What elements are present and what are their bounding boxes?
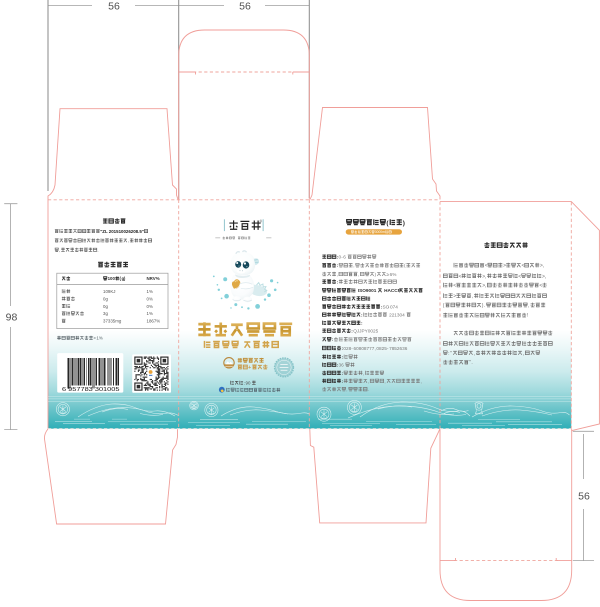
svg-text:221304: 221304 <box>389 313 405 318</box>
svg-text:): ) <box>403 220 405 227</box>
svg-text:109KJ: 109KJ <box>103 289 115 294</box>
svg-text:>: > <box>503 263 506 269</box>
svg-text:6 957783 301005: 6 957783 301005 <box>62 387 120 393</box>
svg-text:ZL 201510026208.5: ZL 201510026208.5 <box>102 229 142 234</box>
svg-text:<: < <box>518 274 521 280</box>
svg-text:,: , <box>485 283 486 289</box>
svg-text:,: , <box>523 351 524 357</box>
svg-text:,: , <box>485 274 486 280</box>
svg-text:.: . <box>484 303 485 309</box>
svg-text:3g: 3g <box>103 311 108 316</box>
svg-text:,: , <box>545 274 546 280</box>
svg-text:074: 074 <box>390 305 398 310</box>
svg-text:ISO9001: ISO9001 <box>358 288 377 293</box>
svg-text:7852636: 7852636 <box>389 346 408 351</box>
svg-text:6%: 6% <box>390 272 397 277</box>
svg-text:.: . <box>97 248 98 253</box>
svg-text:0%: 0% <box>147 304 153 309</box>
svg-text:<: < <box>539 283 542 289</box>
svg-text:1%: 1% <box>96 336 102 341</box>
svg-text:+: + <box>248 365 251 371</box>
svg-text:<: < <box>485 263 488 269</box>
svg-text:!: ! <box>527 313 528 319</box>
svg-text:HACCP: HACCP <box>384 288 401 293</box>
svg-text:,: , <box>472 294 473 300</box>
svg-text:90: 90 <box>246 381 251 386</box>
svg-text:,: , <box>59 248 60 253</box>
svg-text:,: , <box>474 351 475 357</box>
svg-text:.: . <box>471 360 472 366</box>
svg-text:1%: 1% <box>147 311 153 316</box>
svg-text:,: , <box>128 238 129 243</box>
svg-text:QJJPY0025: QJJPY0025 <box>353 329 378 334</box>
svg-text:,: , <box>543 263 544 269</box>
svg-text:1%: 1% <box>147 289 153 294</box>
svg-text:37335mg: 37335mg <box>103 319 122 324</box>
svg-text:1867%: 1867% <box>147 319 161 324</box>
svg-text:,: , <box>346 387 347 392</box>
svg-text:<: < <box>459 274 462 280</box>
svg-text:": " <box>450 351 452 357</box>
svg-text:0825: 0825 <box>376 346 387 351</box>
svg-text:56: 56 <box>578 491 590 503</box>
svg-text:,: , <box>384 379 385 384</box>
svg-text:6: 6 <box>343 255 346 260</box>
svg-text:3000m: 3000m <box>375 230 385 234</box>
svg-text:<: < <box>522 263 525 269</box>
svg-text:,: , <box>337 272 338 277</box>
svg-text:0g: 0g <box>103 296 108 301</box>
svg-text:98: 98 <box>6 311 18 323</box>
svg-text:,: , <box>528 303 529 309</box>
svg-text:36: 36 <box>339 363 345 368</box>
svg-text:56: 56 <box>239 1 251 13</box>
svg-text:NRV%: NRV% <box>147 276 160 281</box>
svg-text:60808777: 60808777 <box>354 346 375 351</box>
svg-text:0g: 0g <box>103 304 108 309</box>
svg-text:": " <box>142 229 144 234</box>
svg-text:<: < <box>453 283 456 289</box>
svg-text:.: . <box>368 387 369 392</box>
svg-text:,: , <box>421 379 422 384</box>
svg-text:,: , <box>363 371 364 376</box>
svg-text:,: , <box>358 272 359 277</box>
svg-text:0%: 0% <box>147 296 153 301</box>
svg-text:,: , <box>353 263 354 268</box>
svg-text:100: 100 <box>108 276 116 281</box>
svg-text:>: > <box>453 294 456 300</box>
svg-text:56: 56 <box>108 1 120 13</box>
svg-text:,: , <box>368 379 369 384</box>
